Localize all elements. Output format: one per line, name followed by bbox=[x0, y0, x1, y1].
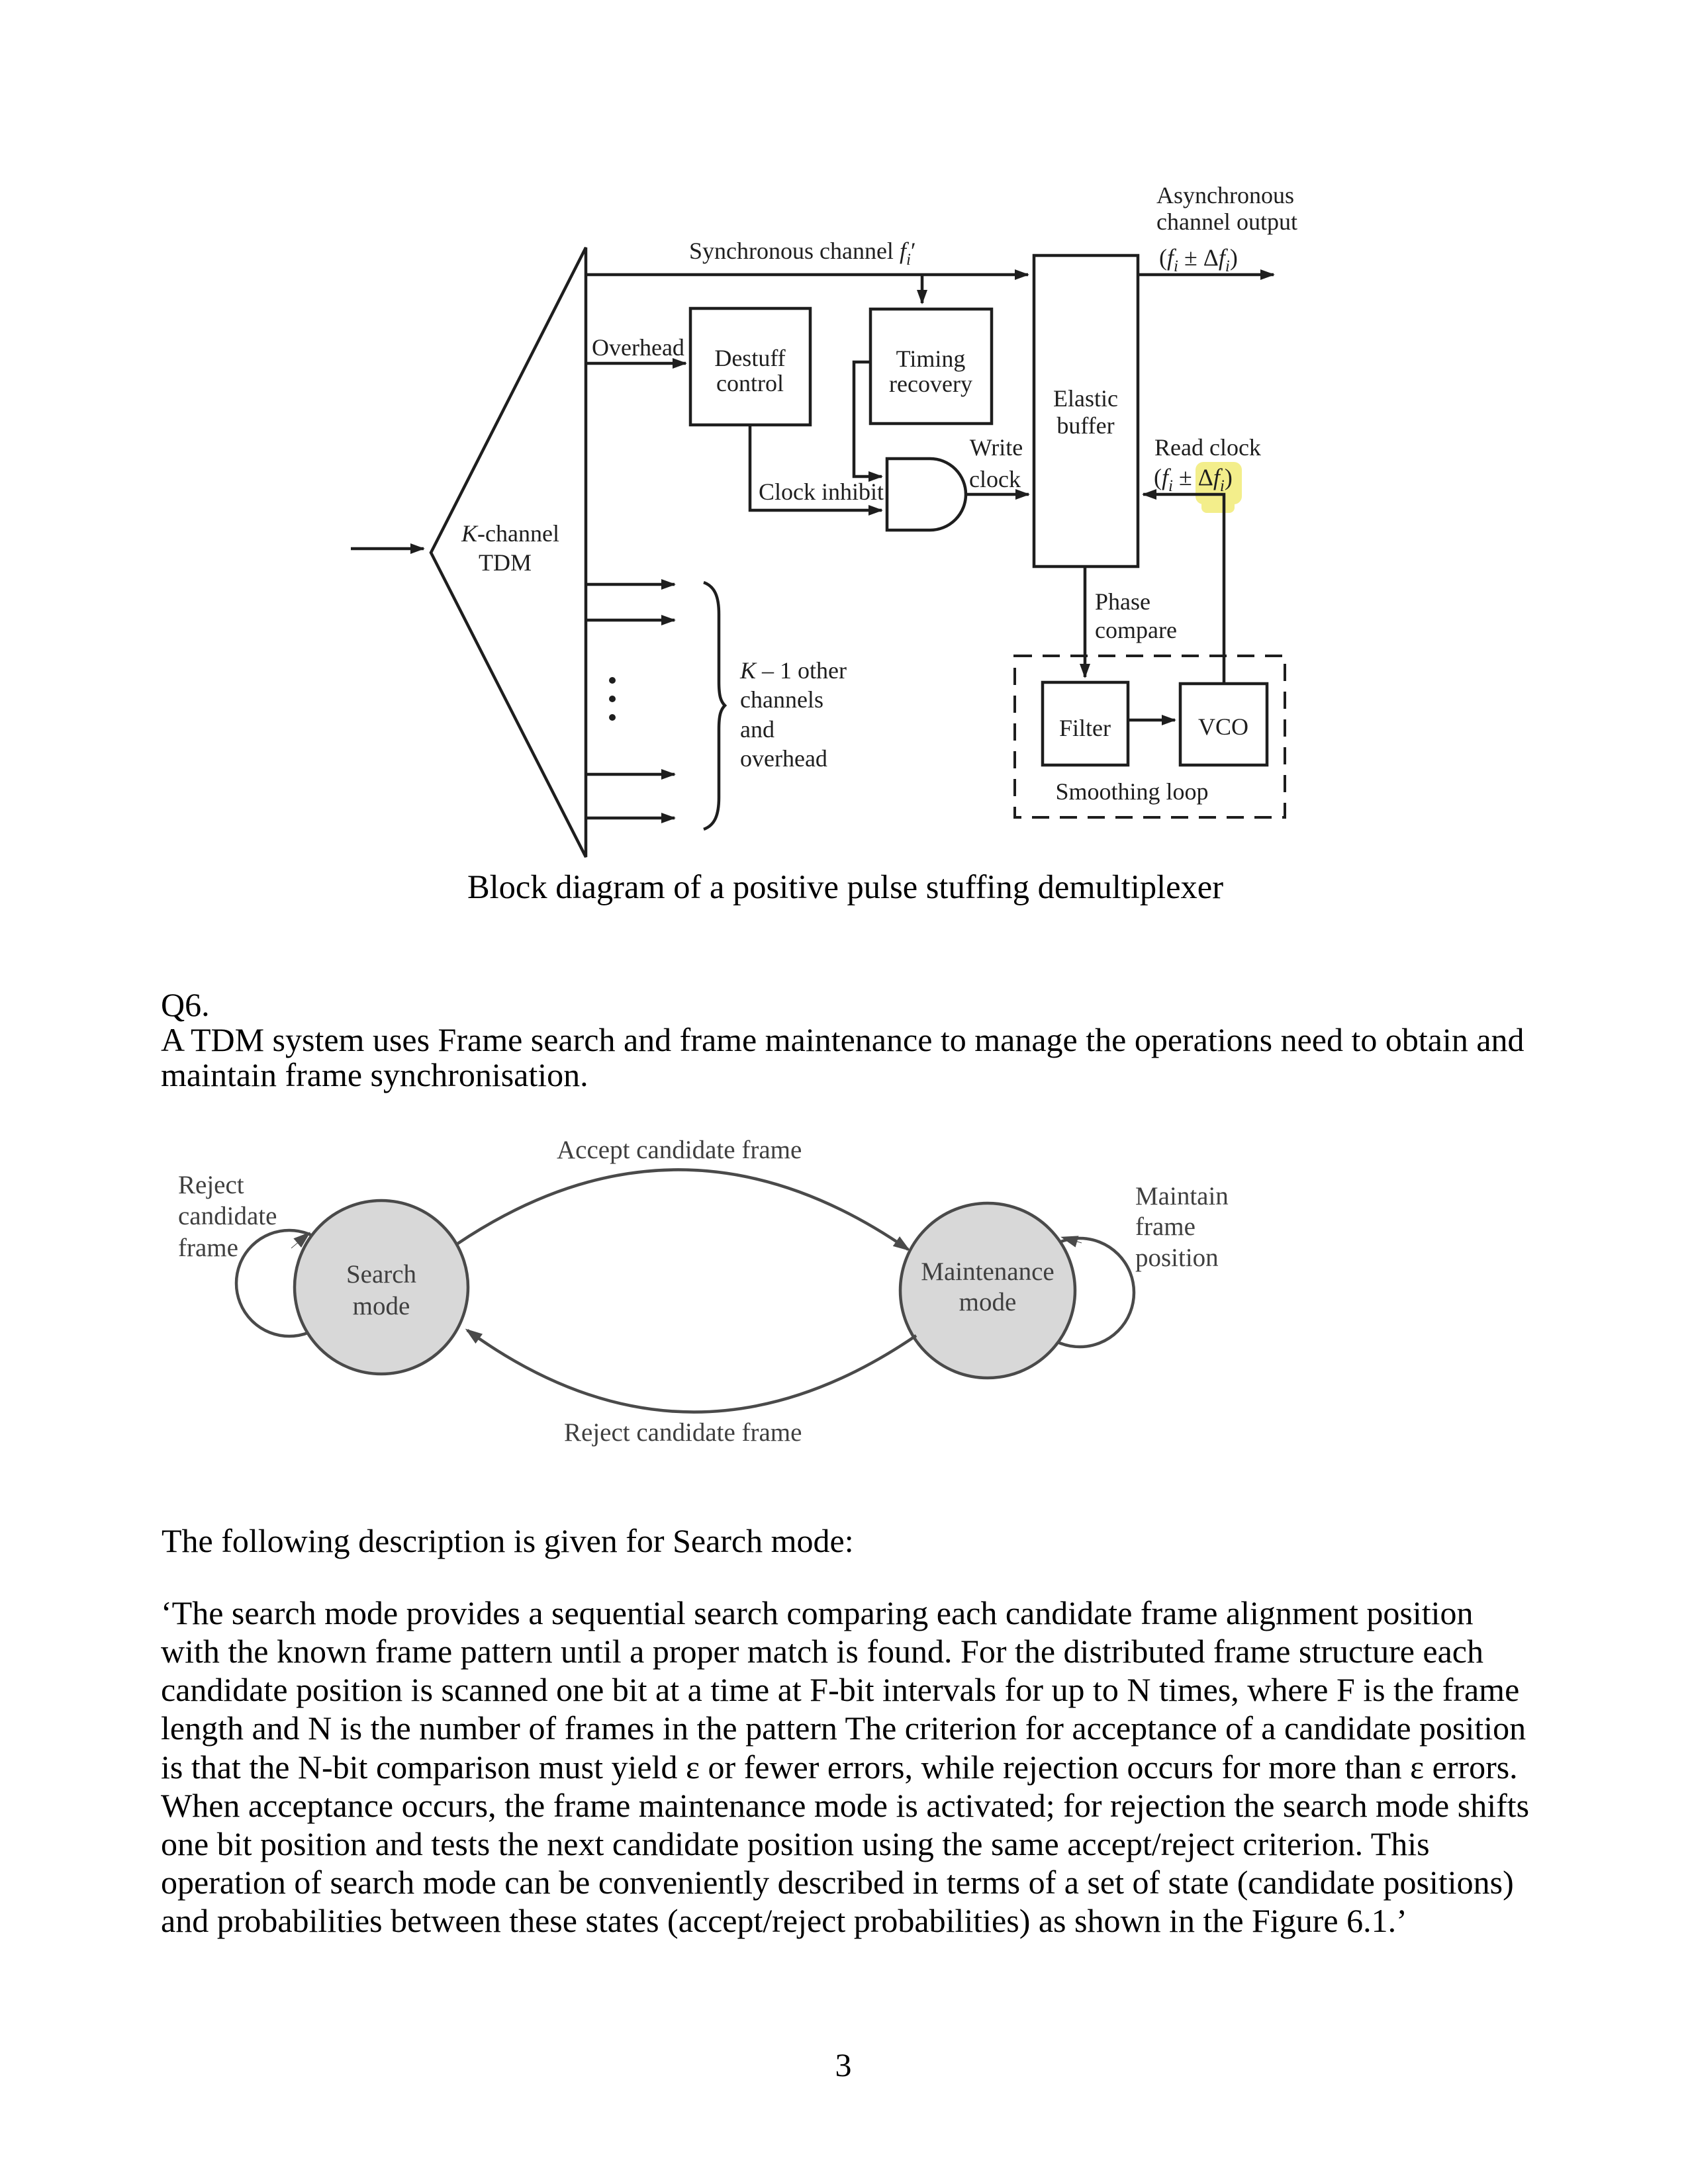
svg-text:frame: frame bbox=[1135, 1212, 1196, 1241]
svg-text:TDM: TDM bbox=[479, 549, 532, 576]
svg-text:is that the N-bit comparison m: is that the N-bit comparison must yield … bbox=[161, 1749, 1518, 1786]
svg-text:K – 1 other: K – 1 other bbox=[739, 657, 847, 684]
svg-text:one bit position and tests the: one bit position and tests the next cand… bbox=[161, 1825, 1430, 1862]
svg-text:mode: mode bbox=[959, 1288, 1017, 1316]
svg-text:length and N is the number of: length and N is the number of frames in … bbox=[161, 1709, 1526, 1747]
svg-text:K-channel: K-channel bbox=[461, 520, 559, 547]
svg-text:channels: channels bbox=[740, 686, 823, 713]
svg-text:channel output: channel output bbox=[1156, 208, 1297, 235]
svg-text:Read clock: Read clock bbox=[1154, 434, 1261, 461]
svg-text:buffer: buffer bbox=[1056, 412, 1114, 439]
svg-text:Smoothing loop: Smoothing loop bbox=[1055, 778, 1208, 805]
svg-text:Overhead: Overhead bbox=[592, 334, 684, 361]
svg-text:position: position bbox=[1135, 1244, 1219, 1272]
svg-text:Reject candidate frame: Reject candidate frame bbox=[564, 1418, 802, 1447]
svg-text:Timing: Timing bbox=[896, 345, 966, 372]
svg-text:Block diagram of a positive pu: Block diagram of a positive pulse stuffi… bbox=[467, 868, 1223, 905]
svg-text:Write: Write bbox=[970, 434, 1023, 461]
svg-text:overhead: overhead bbox=[740, 745, 827, 772]
svg-text:When acceptance occurs, the fr: When acceptance occurs, the frame mainte… bbox=[161, 1787, 1529, 1824]
svg-text:‘The search mode provides a se: ‘The search mode provides a sequential s… bbox=[161, 1594, 1474, 1631]
svg-text:Search: Search bbox=[346, 1260, 416, 1289]
svg-text:Synchronous channel fi′: Synchronous channel fi′ bbox=[689, 238, 916, 269]
svg-text:Phase: Phase bbox=[1095, 588, 1150, 615]
svg-text:The following description is g: The following description is given for S… bbox=[162, 1522, 854, 1559]
svg-text:clock: clock bbox=[969, 466, 1021, 492]
svg-text:A TDM system uses Frame search: A TDM system uses Frame search and frame… bbox=[161, 1021, 1524, 1058]
svg-text:VCO: VCO bbox=[1198, 713, 1248, 740]
svg-text:3: 3 bbox=[835, 2046, 852, 2083]
svg-text:Reject: Reject bbox=[178, 1171, 244, 1199]
svg-text:Accept candidate frame: Accept candidate frame bbox=[557, 1136, 802, 1164]
svg-text:mode: mode bbox=[353, 1292, 410, 1320]
svg-text:Maintain: Maintain bbox=[1135, 1182, 1229, 1210]
svg-text:compare: compare bbox=[1095, 617, 1177, 643]
svg-text:control: control bbox=[716, 370, 784, 396]
svg-text:(fi ± Δfi): (fi ± Δfi) bbox=[1159, 244, 1238, 275]
svg-text:Q6.: Q6. bbox=[161, 986, 210, 1023]
svg-text:recovery: recovery bbox=[889, 371, 972, 397]
svg-text:candidate: candidate bbox=[178, 1202, 277, 1230]
svg-text:Destuff: Destuff bbox=[714, 345, 785, 371]
svg-text:frame: frame bbox=[178, 1234, 238, 1262]
svg-text:operation of search mode can b: operation of search mode can be convenie… bbox=[161, 1864, 1514, 1901]
svg-text:and probabilities between thes: and probabilities between these states (… bbox=[161, 1902, 1407, 1939]
svg-text:candidate position is scanned: candidate position is scanned one bit at… bbox=[161, 1671, 1519, 1708]
svg-text:Filter: Filter bbox=[1059, 715, 1111, 741]
svg-text:Elastic: Elastic bbox=[1053, 385, 1118, 412]
svg-text:Maintenance: Maintenance bbox=[921, 1257, 1054, 1286]
svg-text:Clock inhibit: Clock inhibit bbox=[759, 478, 884, 505]
svg-text:maintain frame synchronisation: maintain frame synchronisation. bbox=[161, 1056, 588, 1093]
svg-text:Asynchronous: Asynchronous bbox=[1156, 182, 1294, 208]
svg-text:and: and bbox=[740, 716, 774, 743]
svg-text:with the known frame pattern u: with the known frame pattern until a pro… bbox=[161, 1633, 1483, 1670]
